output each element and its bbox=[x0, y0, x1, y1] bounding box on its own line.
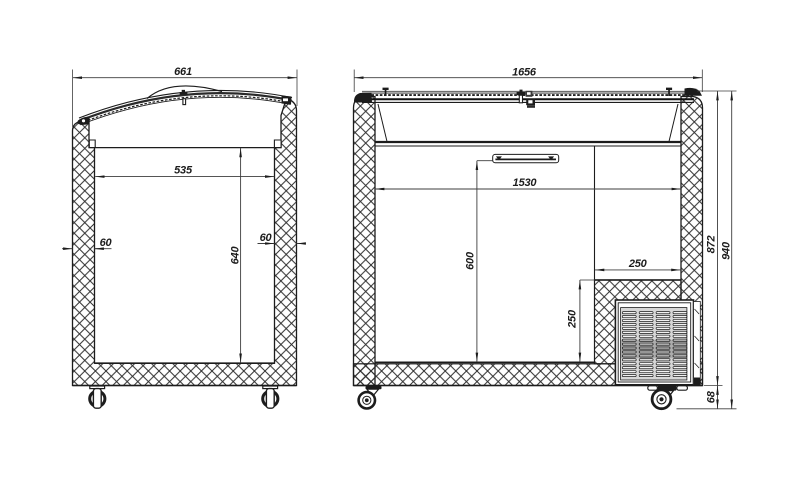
svg-text:940: 940 bbox=[721, 241, 733, 260]
svg-text:60: 60 bbox=[100, 237, 113, 249]
svg-text:640: 640 bbox=[229, 246, 241, 265]
svg-text:250: 250 bbox=[566, 309, 578, 329]
svg-text:872: 872 bbox=[706, 236, 718, 254]
svg-text:250: 250 bbox=[628, 258, 648, 270]
svg-text:661: 661 bbox=[174, 66, 192, 78]
svg-text:535: 535 bbox=[174, 164, 193, 176]
svg-text:68: 68 bbox=[706, 390, 718, 403]
svg-text:1656: 1656 bbox=[512, 67, 537, 79]
svg-text:600: 600 bbox=[464, 251, 476, 270]
svg-text:1530: 1530 bbox=[513, 177, 538, 189]
svg-text:60: 60 bbox=[260, 232, 273, 244]
